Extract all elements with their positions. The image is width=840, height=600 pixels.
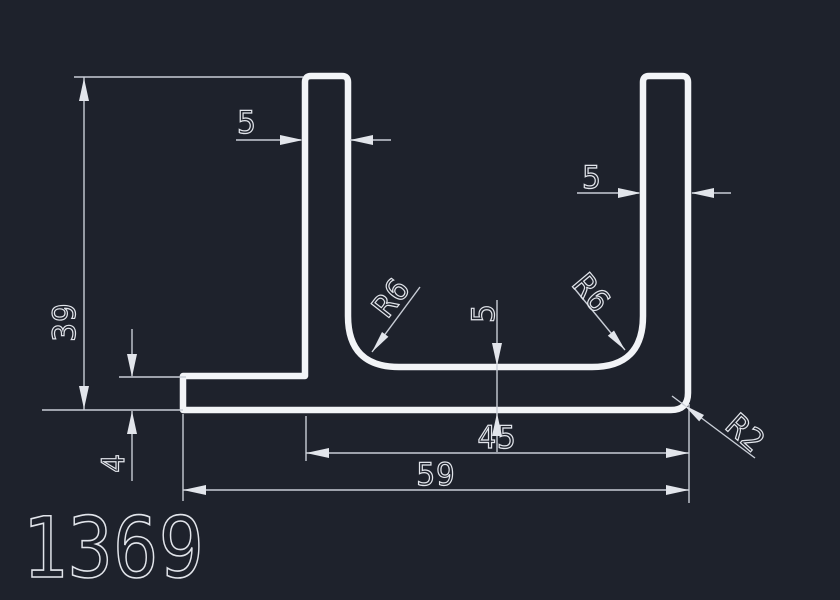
- dim-leg-thickness: 4: [96, 329, 186, 481]
- dim-overall-height-label: 39: [47, 302, 83, 341]
- arrowhead-right: [666, 485, 689, 495]
- dim-leg-thickness-label: 4: [96, 453, 132, 473]
- dim-overall-height: 39: [42, 77, 303, 410]
- fillet-left-label: R6: [365, 271, 418, 324]
- arrowhead-right: [280, 135, 303, 145]
- leader-fillet-right: R6: [565, 267, 625, 350]
- profile-outline: [183, 76, 688, 410]
- part-number: 1369: [22, 499, 204, 597]
- cad-drawing-canvas: 39 4 5 5 5: [0, 0, 840, 600]
- arrowhead-left: [306, 448, 329, 458]
- arrowhead-right: [618, 188, 641, 198]
- dim-base-thickness-label: 5: [466, 303, 502, 323]
- arrowhead-down: [79, 386, 89, 409]
- dim-channel-width: 45: [306, 416, 689, 461]
- arrowhead: [608, 331, 625, 351]
- arrowhead-left: [691, 188, 714, 198]
- dim-channel-width-label: 45: [477, 420, 516, 456]
- dim-left-flange: 5: [236, 105, 391, 145]
- arrowhead-down: [492, 343, 502, 366]
- corner-radius-label: R2: [719, 407, 772, 460]
- dim-right-flange: 5: [577, 160, 731, 198]
- fillet-right-label: R6: [565, 267, 618, 320]
- dim-overall-width-label: 59: [416, 457, 455, 493]
- arrowhead-right: [666, 448, 689, 458]
- leader-fillet-left: R6: [365, 271, 420, 352]
- arrowhead: [684, 405, 704, 421]
- dim-left-flange-label: 5: [237, 105, 257, 141]
- arrowhead-up: [79, 78, 89, 101]
- arrowhead-down: [127, 354, 137, 377]
- arrowhead: [372, 332, 388, 352]
- dim-right-flange-label: 5: [582, 160, 602, 196]
- arrowhead-up: [127, 411, 137, 434]
- arrowhead-left: [350, 135, 373, 145]
- profile-drawing: 39 4 5 5 5: [0, 0, 840, 600]
- arrowhead-left: [183, 485, 206, 495]
